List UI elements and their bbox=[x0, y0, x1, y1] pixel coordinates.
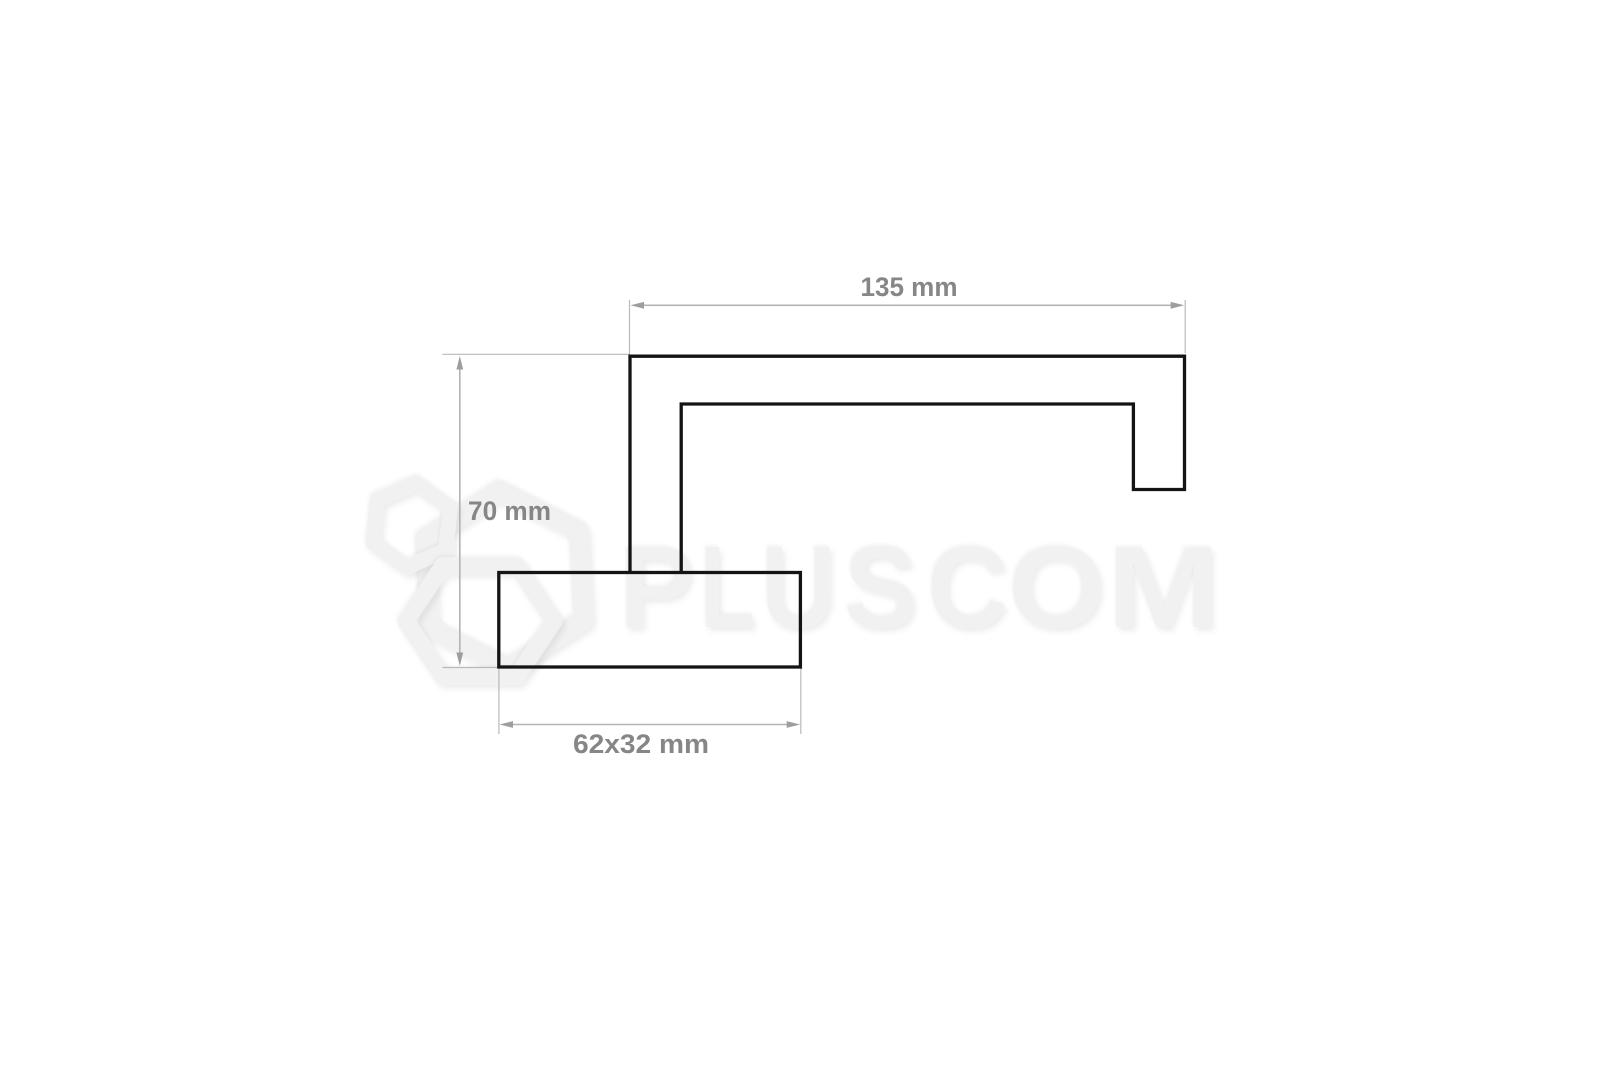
svg-text:70 mm: 70 mm bbox=[468, 496, 551, 526]
svg-text:135 mm: 135 mm bbox=[861, 272, 958, 302]
svg-text:62x32 mm: 62x32 mm bbox=[573, 729, 709, 759]
